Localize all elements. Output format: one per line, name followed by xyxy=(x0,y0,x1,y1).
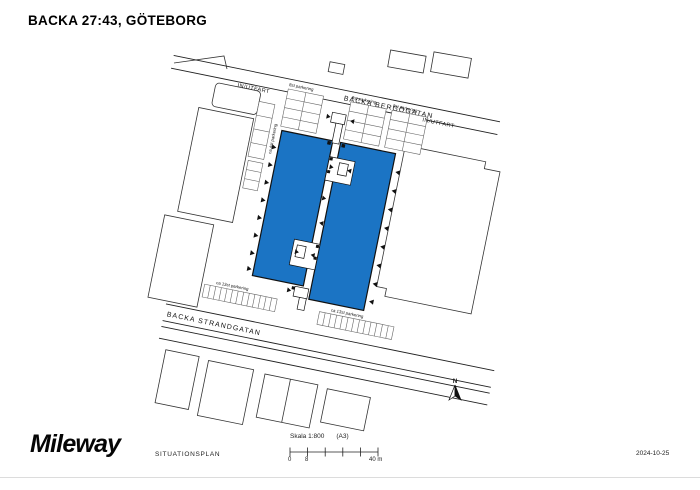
entry-label-right: IN/UTFART xyxy=(422,117,455,129)
scale-tick-0: 0 xyxy=(288,457,291,463)
scale-label: Skala 1:800(A3) xyxy=(290,433,349,440)
drawing-date: 2024-10-25 xyxy=(636,450,669,457)
north-arrow-icon: N xyxy=(449,379,461,400)
scale-tick-40: 40 m xyxy=(369,457,382,463)
drawing-type-label: SITUATIONSPLAN xyxy=(155,451,220,458)
drawing-sheet: BACKA 27:43, GÖTEBORG BACKA BERGÖGATAN xyxy=(0,0,700,490)
paper-size-label: (A3) xyxy=(336,433,348,440)
north-arrow-label: N xyxy=(453,379,457,385)
page-bottom-rule xyxy=(0,477,700,478)
scale-text: Skala 1:800 xyxy=(290,433,324,440)
company-logo: Mileway xyxy=(30,430,120,459)
context-east-building xyxy=(375,145,501,313)
context-west-buildings xyxy=(148,78,261,311)
scale-tick-8: 8 xyxy=(305,457,308,463)
context-north-structures xyxy=(174,50,471,78)
site-plan-drawing: BACKA BERGÖGATAN BACKA STRANDGATAN xyxy=(0,0,700,490)
